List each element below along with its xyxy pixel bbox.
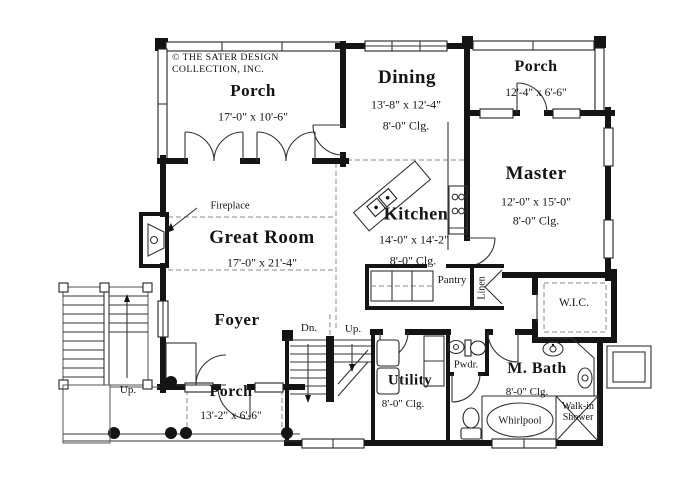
- master-window: [604, 128, 613, 166]
- copyright-notice: © THE SATER DESIGN COLLECTION, INC.: [172, 52, 279, 76]
- room-label-pwdr: Pwdr.: [454, 360, 478, 371]
- ceiling-utility: 8'-0" Clg.: [382, 398, 425, 410]
- dims-porch-top-left: 17'-0" x 10'-6": [218, 110, 288, 125]
- label-whirlpool: Whirlpool: [498, 416, 541, 427]
- porch-window: [480, 109, 513, 118]
- bath-sink: [578, 368, 592, 388]
- left-stairs: [59, 283, 152, 443]
- label-fireplace: Fireplace: [210, 201, 249, 212]
- room-label-linen: Linen: [478, 276, 489, 299]
- floor-plan: © THE SATER DESIGN COLLECTION, INC. Porc…: [0, 0, 700, 494]
- label-stairs-up-left: Up.: [120, 384, 136, 396]
- label-stairs-up-center: Up.: [345, 323, 361, 335]
- room-label-great-room: Great Room: [209, 227, 314, 249]
- ceiling-master: 8'-0" Clg.: [513, 214, 559, 229]
- room-label-foyer: Foyer: [215, 310, 260, 330]
- dims-porch-top-right: 12'-4" x 6'-6": [505, 87, 566, 99]
- dims-great-room: 17'-0" x 21'-4": [227, 256, 297, 271]
- powder-toilet-bowl: [471, 341, 486, 355]
- foyer-structure: [160, 343, 302, 419]
- room-label-master: Master: [505, 163, 566, 185]
- room-label-kitchen: Kitchen: [384, 204, 449, 225]
- dims-porch-bottom: 13'-2" x 6'-6": [200, 410, 261, 422]
- south-wall: [287, 439, 600, 448]
- room-label-utility: Utility: [388, 373, 432, 390]
- washer: [377, 340, 399, 366]
- room-label-dining: Dining: [378, 67, 436, 89]
- copyright-line1: © THE SATER DESIGN: [172, 52, 279, 64]
- porch-window: [255, 383, 283, 392]
- dims-kitchen: 14'-0" x 14'-2": [379, 233, 449, 248]
- porch-column: [165, 427, 177, 439]
- room-label-porch-bottom: Porch: [209, 383, 252, 401]
- room-label-pantry: Pantry: [438, 274, 467, 286]
- porch-window: [553, 109, 580, 118]
- ceiling-mbath: 8'-0" Clg.: [506, 386, 549, 398]
- label-stairs-down: Dn.: [301, 322, 317, 334]
- floor-plan-drawing: [0, 0, 700, 494]
- dims-master: 12'-0" x 15'-0": [501, 195, 571, 210]
- bath-toilet-bowl: [463, 408, 479, 428]
- ceiling-kitchen: 8'-0" Clg.: [390, 254, 436, 269]
- ceiling-dining: 8'-0" Clg.: [383, 119, 429, 134]
- room-label-porch-top-left: Porch: [230, 81, 276, 101]
- walkin-shower-line2: Shower: [562, 413, 594, 424]
- label-walkin-shower: Walk-in Shower: [562, 402, 594, 424]
- bath-toilet-tank: [461, 428, 481, 439]
- room-label-wic: W.I.C.: [559, 297, 589, 309]
- porch-column: [180, 427, 192, 439]
- porch-column: [281, 427, 293, 439]
- dims-dining: 13'-8" x 12'-4": [371, 98, 441, 113]
- porch-top-right-structure: [462, 36, 612, 118]
- kitchen-fixtures: [354, 122, 467, 250]
- powder-sink: [448, 341, 464, 354]
- master-window: [604, 220, 613, 258]
- porch-column: [165, 376, 177, 388]
- room-label-porch-top-right: Porch: [514, 58, 557, 76]
- mbath-structure: [461, 332, 651, 443]
- room-label-mbath: M. Bath: [507, 360, 567, 378]
- copyright-line2: COLLECTION, INC.: [172, 64, 279, 76]
